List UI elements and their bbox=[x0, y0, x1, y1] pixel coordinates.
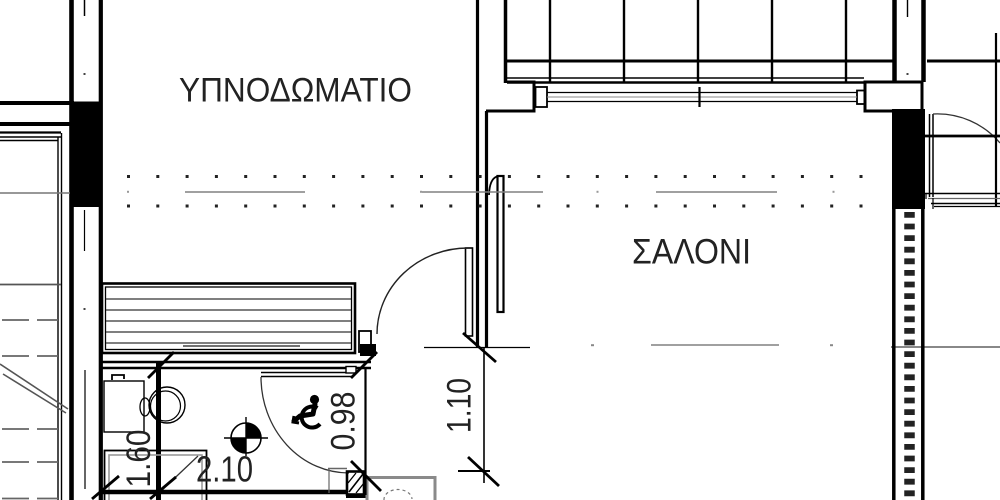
svg-text:1.10: 1.10 bbox=[441, 378, 479, 433]
svg-text:2.10: 2.10 bbox=[196, 449, 253, 490]
svg-text:0.98: 0.98 bbox=[325, 392, 363, 451]
svg-text:ΥΠΝΟΔΩΜΑΤΙΟ: ΥΠΝΟΔΩΜΑΤΙΟ bbox=[179, 72, 412, 110]
svg-text:1.60: 1.60 bbox=[120, 430, 158, 488]
svg-text:ΣΑΛΟΝΙ: ΣΑΛΟΝΙ bbox=[632, 233, 751, 272]
